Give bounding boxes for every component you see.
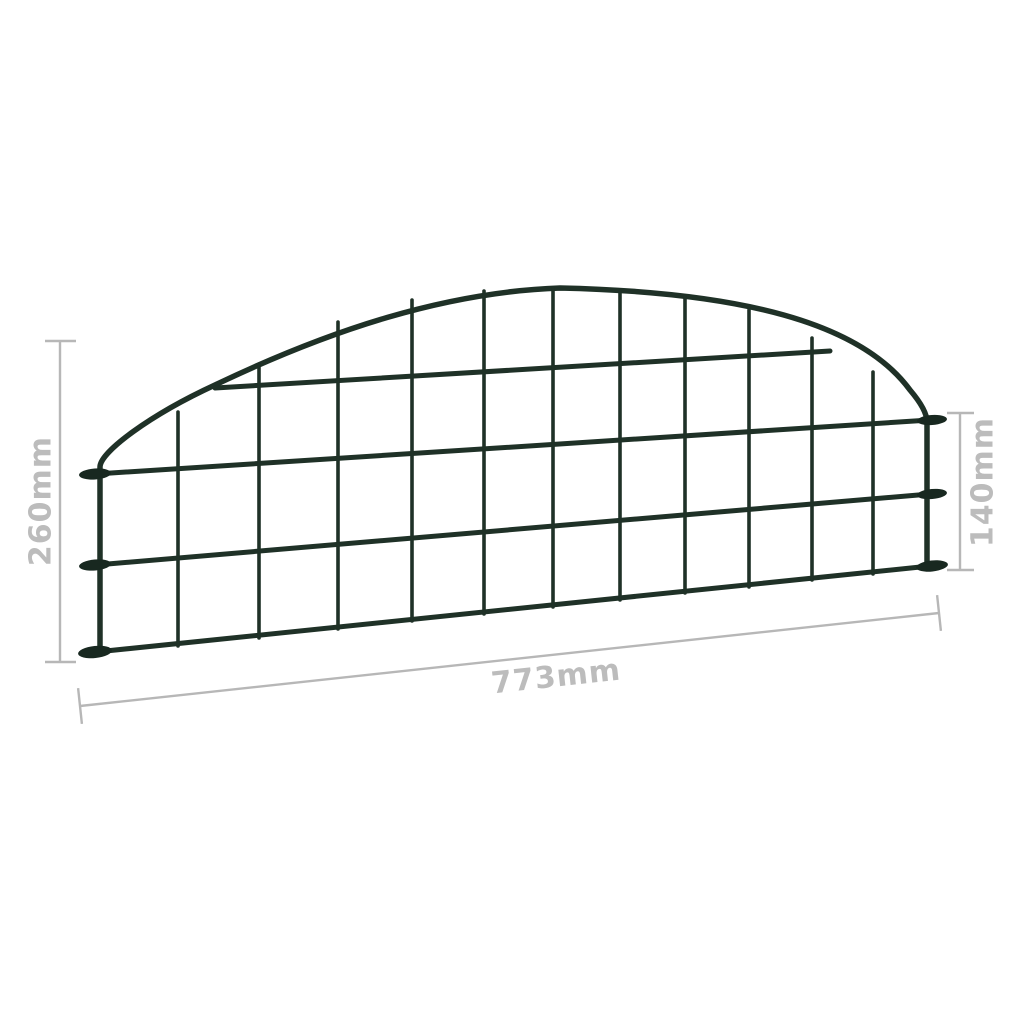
dimension-bottom-width xyxy=(78,595,941,724)
fence-arch-frame xyxy=(100,288,927,654)
fence-foot-right-bottom xyxy=(916,559,949,573)
fence-rail-top xyxy=(96,420,930,474)
arched-fence-diagram-canvas: 260mm 140mm 773mm xyxy=(0,0,1024,1024)
fence-rail-bottom xyxy=(96,566,930,652)
fence-rail-feet xyxy=(77,414,948,660)
fence-foot-left-bottom xyxy=(77,644,112,659)
fence-rails xyxy=(96,351,930,652)
fence-foot-right-middle xyxy=(917,488,948,501)
fence-foot-left-top xyxy=(79,467,112,480)
fence-rail-chord xyxy=(215,351,830,388)
fence-foot-left-middle xyxy=(79,558,112,572)
fence-vertical-wires xyxy=(178,288,873,646)
product-dimension-diagram: 260mm 140mm 773mm xyxy=(0,0,1024,1024)
fence-foot-right-top xyxy=(917,414,948,426)
dimension-left-label: 260mm xyxy=(24,436,59,566)
fence-rail-middle xyxy=(96,494,930,565)
dimension-right-label: 140mm xyxy=(966,417,1001,547)
fence-panel xyxy=(96,288,930,654)
